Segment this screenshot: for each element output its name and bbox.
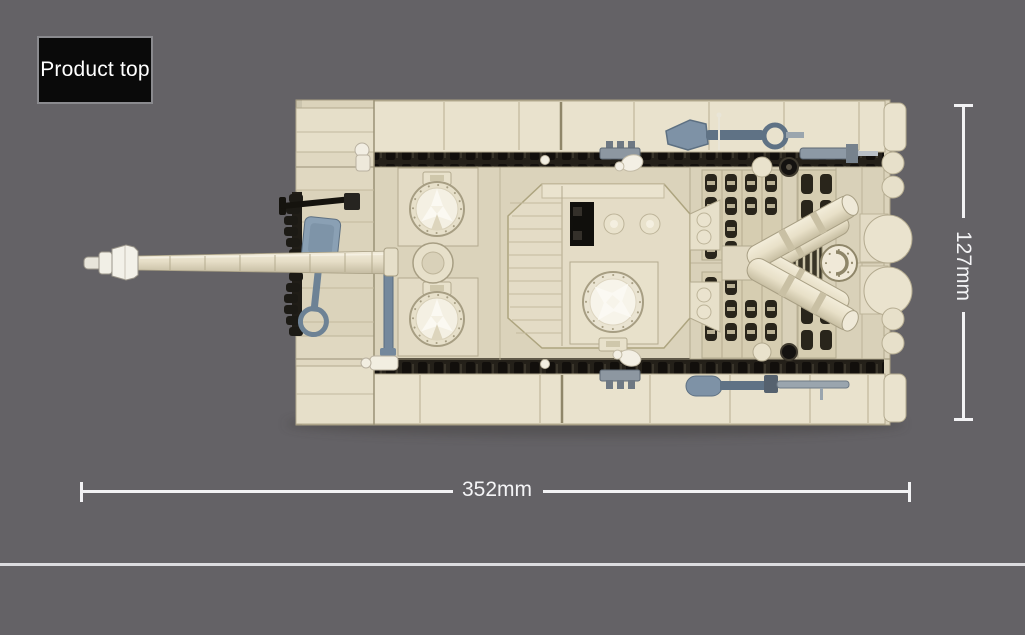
fender-top — [374, 101, 906, 152]
width-dimension-line-left — [83, 490, 453, 493]
deck-knob-dark-top — [780, 158, 798, 176]
deck-stud-light-bottom — [753, 343, 771, 361]
front-hatch-lower — [398, 278, 478, 356]
stud-white-bottom — [541, 360, 550, 369]
section-divider-line — [0, 563, 1025, 566]
width-dimension-line-right — [543, 490, 908, 493]
product-view-label: Product top — [40, 58, 150, 82]
stud-white-top — [541, 156, 550, 165]
product-dimension-page: Product top 352mm 127mm — [0, 0, 1025, 635]
pry-bar-vertical — [384, 266, 393, 352]
deck-stud-light-top — [752, 157, 772, 177]
height-dimension-bottom-cap — [954, 418, 973, 421]
periscope-top-left — [355, 143, 370, 171]
front-hatch-upper — [398, 168, 478, 246]
muzzle-brake — [84, 245, 138, 280]
width-dimension-right-cap — [908, 482, 911, 502]
height-dimension-line-top — [962, 106, 965, 218]
width-dimension-label: 352mm — [447, 478, 547, 502]
gun-mantlet — [413, 243, 453, 283]
commander-cupola — [570, 262, 658, 351]
clip-connector-bottom — [600, 370, 640, 389]
tank-top-view-image — [0, 0, 1025, 635]
product-view-label-box: Product top — [37, 36, 153, 104]
height-dimension-label: 127mm — [951, 216, 975, 316]
height-dimension-line-bottom — [962, 312, 965, 419]
gun-barrel — [134, 248, 398, 276]
fuel-cap-dial — [821, 245, 857, 281]
periscope-bottom-left — [361, 356, 398, 370]
deck-knob-dark-bottom — [781, 344, 797, 360]
